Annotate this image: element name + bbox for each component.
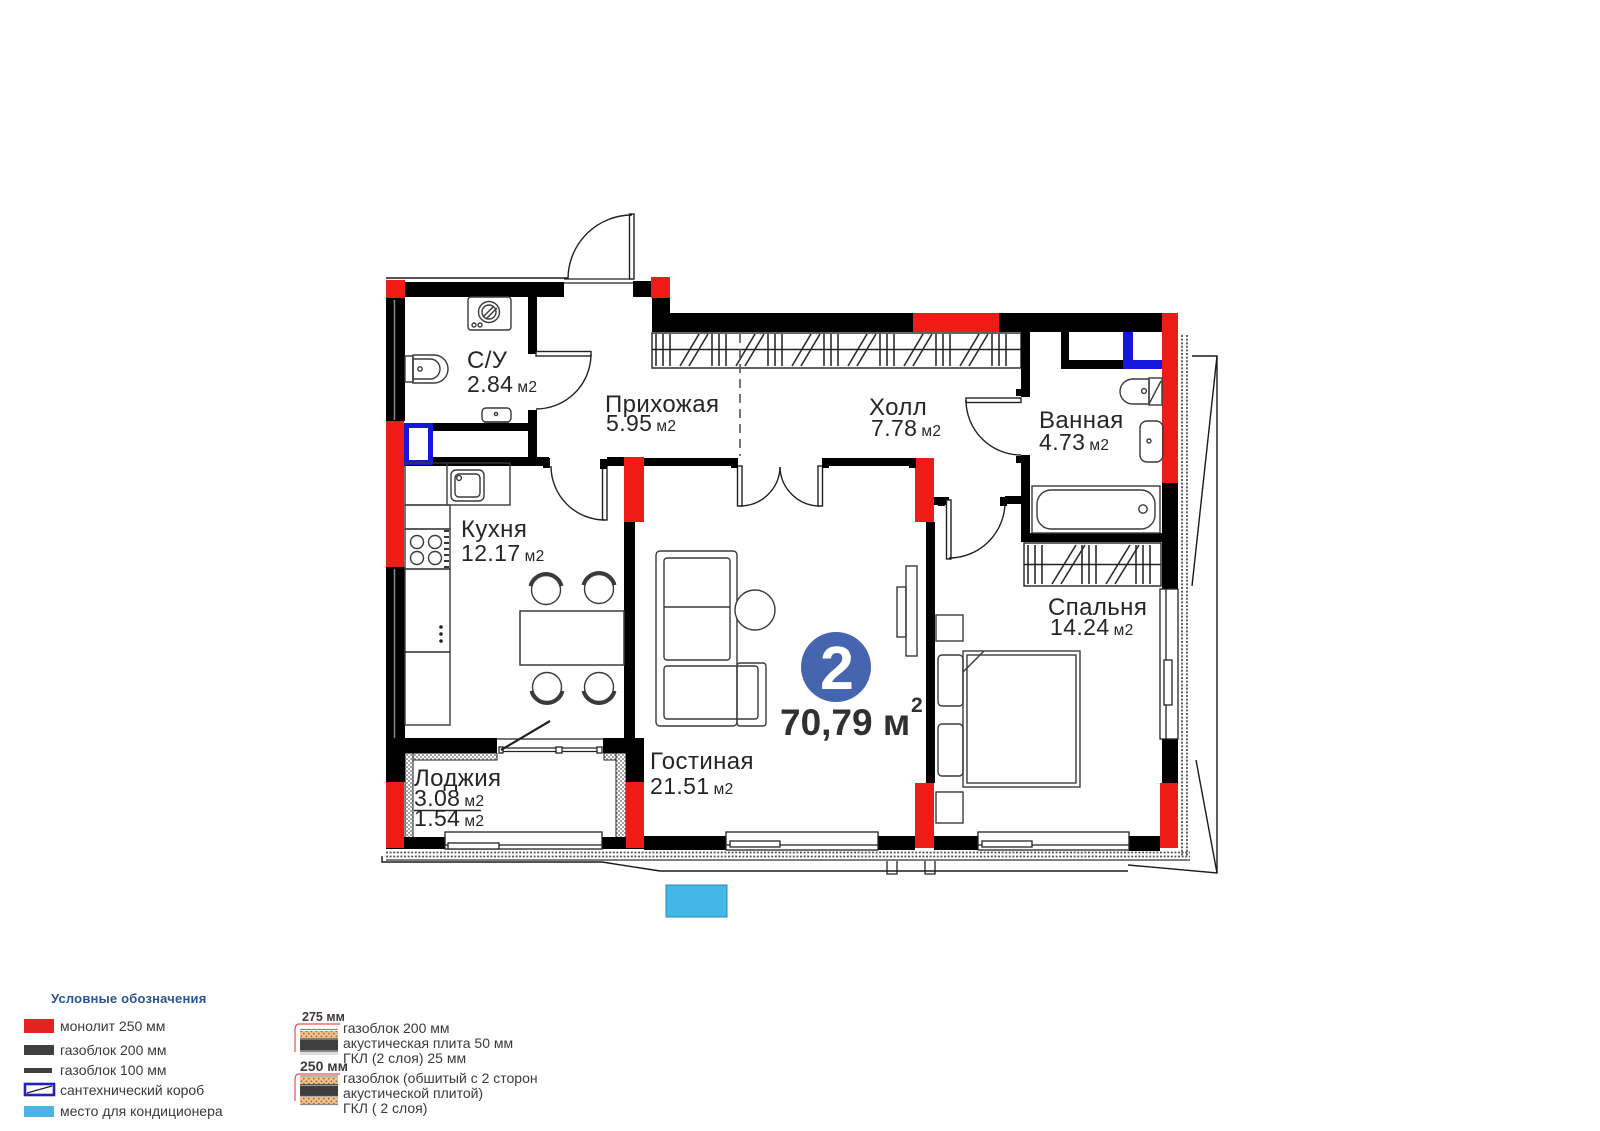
svg-text:газоблок 100 мм: газоблок 100 мм	[60, 1062, 167, 1078]
svg-text:250 мм: 250 мм	[300, 1058, 348, 1074]
svg-text:ГКЛ ( 2 слоя): ГКЛ ( 2 слоя)	[343, 1100, 427, 1116]
svg-text:акустическая плита 50 мм: акустическая плита 50 мм	[343, 1035, 513, 1051]
svg-text:Гостиная: Гостиная	[650, 748, 754, 775]
svg-text:место для кондиционера: место для кондиционера	[60, 1103, 223, 1119]
svg-text:2: 2	[820, 634, 854, 702]
svg-text:Кухня: Кухня	[461, 516, 527, 543]
svg-text:газоблок 200 мм: газоблок 200 мм	[60, 1042, 167, 1058]
svg-text:70,79 м: 70,79 м	[780, 702, 910, 743]
svg-text:газоблок (обшитый с 2 сторон: газоблок (обшитый с 2 сторон	[343, 1070, 538, 1086]
svg-text:ГКЛ (2 слоя) 25 мм: ГКЛ (2 слоя) 25 мм	[343, 1050, 466, 1066]
svg-text:Условные обозначения: Условные обозначения	[51, 991, 206, 1006]
svg-text:сантехнический короб: сантехнический короб	[60, 1082, 204, 1098]
svg-text:С/У: С/У	[467, 347, 508, 374]
svg-text:газоблок 200 мм: газоблок 200 мм	[343, 1020, 450, 1036]
svg-text:монолит 250 мм: монолит 250 мм	[60, 1018, 165, 1034]
svg-text:275 мм: 275 мм	[302, 1010, 345, 1024]
svg-text:акустической плитой): акустической плитой)	[343, 1085, 483, 1101]
svg-text:2: 2	[911, 694, 923, 717]
